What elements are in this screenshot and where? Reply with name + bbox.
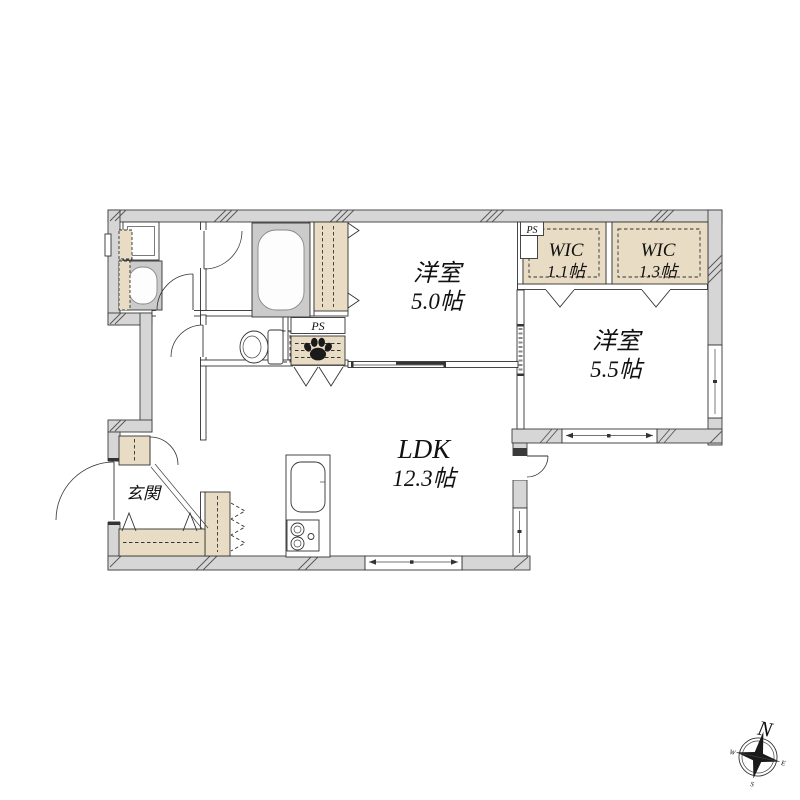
bedroom1-name: 洋室 xyxy=(413,260,464,287)
shoe-cabinet-upper xyxy=(119,436,178,465)
compass-west: W xyxy=(729,748,738,757)
ps-box-toilet: PS xyxy=(291,318,345,334)
kitchen-island xyxy=(286,455,330,557)
ps-label-1: PS xyxy=(525,225,537,236)
washing-machine-pan xyxy=(119,222,159,260)
entrance-label: 玄関 xyxy=(126,484,162,503)
bedroom1-closet xyxy=(314,222,359,311)
wic-folding-doors xyxy=(546,290,670,307)
wic1-name: WIC xyxy=(549,240,584,261)
bedroom2-name: 洋室 xyxy=(592,328,643,355)
ldk-service-door xyxy=(527,456,548,477)
window-right-wall xyxy=(708,345,722,418)
window-washroom-slot xyxy=(105,234,111,256)
window-ldk-right xyxy=(513,508,527,556)
wic2-name: WIC xyxy=(641,240,676,261)
window-ldk-bottom xyxy=(365,556,462,570)
compass-south: S xyxy=(750,780,756,789)
ldk-name: LDK xyxy=(397,434,453,464)
wic2-size: 1.3帖 xyxy=(639,262,680,281)
bedroom1-sliding-door xyxy=(348,362,518,368)
kitchen-pantry xyxy=(205,492,245,556)
bedroom2-size: 5.5帖 xyxy=(590,357,645,382)
compass-north: N xyxy=(755,715,776,742)
interior-doors xyxy=(157,231,548,477)
kitchen-stove xyxy=(287,520,319,551)
bathroom-door xyxy=(204,231,242,269)
compass-east: E xyxy=(779,759,787,768)
bathtub xyxy=(252,223,310,317)
bedroom1-size: 5.0帖 xyxy=(411,289,466,314)
pet-storage xyxy=(291,336,345,386)
toilet xyxy=(240,330,290,364)
wic1-size: 1.1帖 xyxy=(547,262,588,281)
shoe-cabinet-lower xyxy=(119,513,205,556)
ps-label-2: PS xyxy=(310,319,324,333)
floor-plan: PS PS xyxy=(0,0,800,800)
window-bedroom2-bottom xyxy=(562,429,657,443)
kitchen-sink xyxy=(291,462,325,512)
compass-icon: N W E S xyxy=(723,711,795,794)
vanity xyxy=(119,261,162,310)
entrance-door xyxy=(56,462,114,520)
ldk-size: 12.3帖 xyxy=(392,466,458,491)
toilet-door xyxy=(171,325,203,357)
